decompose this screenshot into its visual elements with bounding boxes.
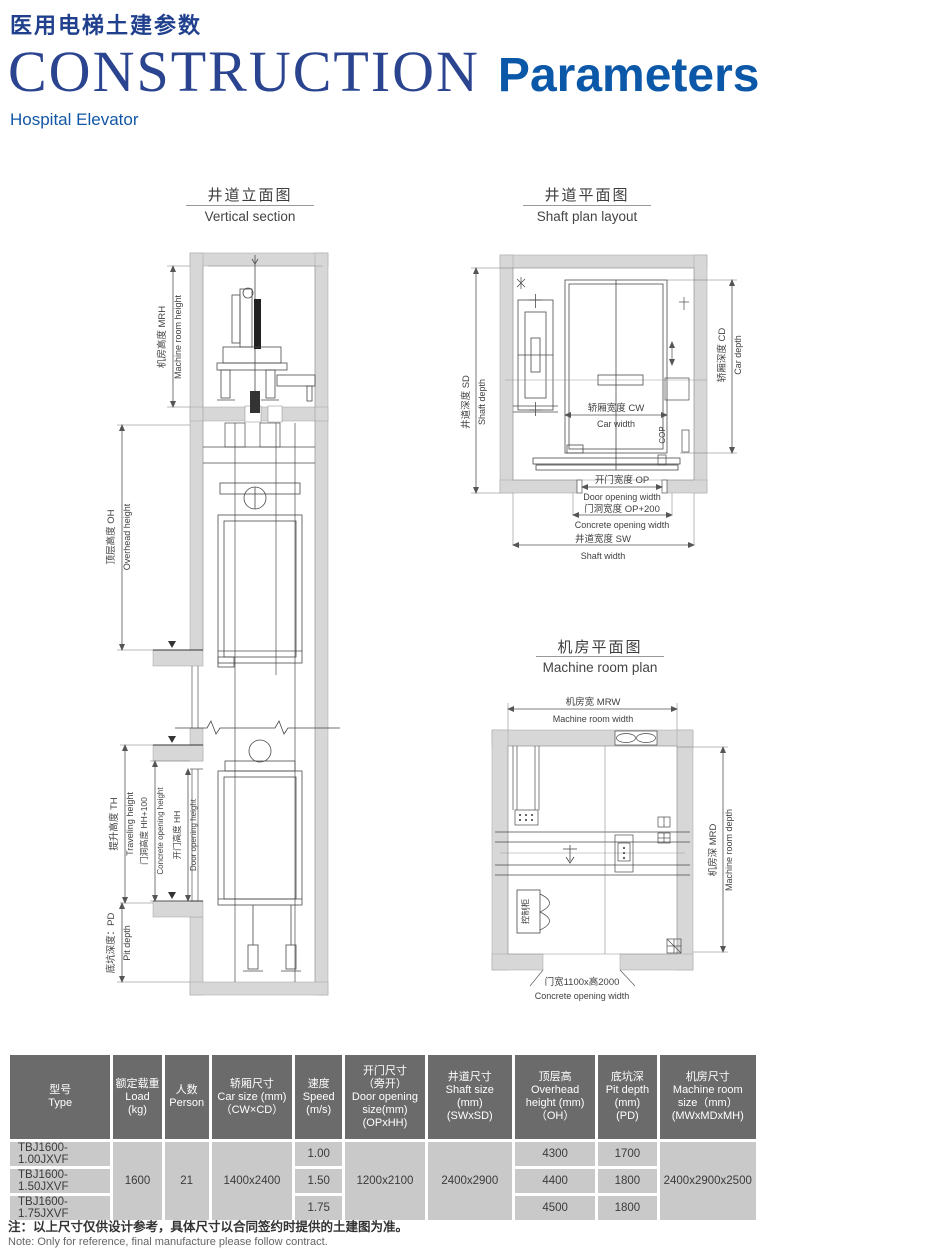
header-type: 型号 Type [10, 1055, 110, 1139]
cell-shaft-size: 2400x2900 [428, 1142, 512, 1220]
th-label-zh: 提升高度 TH [108, 797, 120, 850]
cell-pit-1: 1700 [598, 1142, 656, 1166]
cell-pit-2: 1800 [598, 1169, 656, 1193]
shaft-plan-walls [500, 255, 707, 493]
cd-label-en: Car depth [733, 335, 743, 375]
control-cabinet-label: 控制柜 [521, 898, 531, 924]
header-shaft-size: 井道尺寸 Shaft size (mm) (SWxSD) [428, 1055, 512, 1139]
header-car-size: 轿厢尺寸 Car size (mm) （CW×CD） [212, 1055, 292, 1139]
cell-car-size: 1400x2400 [212, 1142, 292, 1220]
shaft-walls [190, 253, 328, 995]
cell-type-2: TBJ1600-1.50JXVF [10, 1169, 110, 1193]
cw-label-en: Car width [597, 419, 635, 429]
op200-label-zh: 门洞宽度 OP+200 [584, 503, 660, 515]
note-chinese: 注：以上尺寸仅供设计参考，具体尺寸以合同签约时提供的土建图为准。 [8, 1216, 408, 1235]
shaft-plan-title-en: Shaft plan layout [497, 209, 677, 224]
mr-door-label-en: Concrete opening width [535, 991, 630, 1001]
cd-label-zh: 轿厢深度 CD [716, 328, 728, 383]
machine-room-plan-title-zh: 机房平面图 [510, 636, 690, 657]
spec-table: 型号 Type 额定载重 Load (kg) 人数 Person 轿厢尺寸 Ca… [7, 1052, 759, 1223]
vent-fan [615, 731, 657, 745]
header-machine-room: 机房尺寸 Machine room size（mm） (MWxMDxMH) [660, 1055, 756, 1139]
cell-machine-room: 2400x2900x2500 [660, 1142, 756, 1220]
cell-load: 1600 [113, 1142, 161, 1220]
pd-label-zh: 底坑深度：PD [105, 913, 117, 974]
vertical-section-title-en: Vertical section [160, 209, 340, 224]
shaft-internals [203, 423, 315, 982]
page-title-chinese: 医用电梯土建参数 [10, 8, 202, 40]
header-pit-depth: 底坑深 Pit depth (mm) (PD) [598, 1055, 656, 1139]
hh-label-zh: 开门高度 HH [172, 811, 182, 860]
shaft-plan-title-rule [523, 205, 651, 206]
machine-room-plan-title-rule [536, 656, 664, 657]
cell-speed-2: 1.50 [295, 1169, 342, 1193]
traction-machine [217, 255, 315, 413]
op-label-en: Door opening width [583, 492, 661, 502]
title-construction: CONSTRUCTION [8, 38, 480, 105]
cell-overhead-3: 4500 [515, 1196, 595, 1220]
header-load: 额定载重 Load (kg) [113, 1055, 161, 1139]
th-label-en: Traveling height [125, 792, 135, 856]
page: { "header": { "title_zh": "医用电梯土建参数", "t… [0, 0, 930, 1258]
page-subtitle: Hospital Elevator [10, 110, 139, 130]
cabinet-door-swing [540, 894, 550, 930]
op-label-zh: 开门宽度 OP [595, 474, 649, 486]
terminal-dots [519, 814, 625, 859]
hh-label-en: Door opening height [189, 798, 198, 871]
car-top-floor [218, 483, 302, 667]
cw-label-zh: 轿厢宽度 CW [588, 402, 645, 414]
shaft-plan-title-zh: 井道平面图 [497, 184, 677, 205]
light-icon [517, 277, 525, 289]
sd-label-zh: 井道深度 SD [460, 375, 472, 429]
mrh-label-zh: 机房高度 MRH [156, 306, 168, 368]
cell-door-opening: 1200x2100 [345, 1142, 424, 1220]
cop-label: COP [658, 426, 667, 443]
mrh-label-en: Machine room height [173, 294, 183, 379]
oh-label-zh: 顶层高度 OH [105, 509, 117, 564]
sw-label-zh: 井道宽度 SW [575, 533, 631, 545]
machine-room-plan-title-en: Machine room plan [510, 660, 690, 675]
machine-room-plan-drawing: 机房宽 MRW Machine room width [455, 675, 765, 1005]
page-title-row: CONSTRUCTION Parameters [8, 38, 759, 105]
note-english: Note: Only for reference, final manufact… [8, 1236, 328, 1248]
mrw-label-en: Machine room width [553, 714, 634, 724]
vertical-section-title-zh: 井道立面图 [160, 184, 340, 205]
mrd-label-en: Machine room depth [724, 809, 734, 891]
header-person: 人数 Person [165, 1055, 209, 1139]
vertical-section-drawing: 机房高度 MRH Machine room height 顶层高度 OH Ove… [95, 245, 345, 1005]
vertical-section-title-rule [186, 205, 314, 206]
hoist-hook-icon [563, 845, 577, 863]
cell-pit-3: 1800 [598, 1196, 656, 1220]
cell-person: 21 [165, 1142, 209, 1220]
pd-label-en: Pit depth [122, 925, 132, 961]
cell-overhead-1: 4300 [515, 1142, 595, 1166]
car-plan [565, 280, 667, 470]
mr-door-label-zh: 门宽1100x高2000 [545, 976, 620, 988]
counterweight [513, 294, 558, 416]
machine-room-inner-face [508, 746, 677, 954]
header-door-opening: 开门尺寸 （旁开） Door opening size(mm) (OPxHH) [345, 1055, 424, 1139]
op200-label-en: Concrete opening width [575, 520, 670, 530]
title-parameters: Parameters [498, 48, 760, 103]
sw-label-en: Shaft width [581, 551, 626, 561]
car-bottom-floor [218, 740, 302, 971]
hh100-label-zh: 门洞高度 HH+100 [139, 797, 149, 865]
header-overhead: 顶层高 Overhead height (mm) （OH） [515, 1055, 595, 1139]
oh-label-en: Overhead height [122, 503, 132, 570]
landing-slabs [153, 641, 203, 917]
machine-room-walls [492, 730, 693, 970]
cell-speed-1: 1.00 [295, 1142, 342, 1166]
mrw-label-zh: 机房宽 MRW [566, 696, 621, 708]
cell-overhead-2: 4400 [515, 1169, 595, 1193]
sd-label-en: Shaft depth [477, 379, 487, 425]
shaft-plan-drawing: COP 井道深度 SD Shaft depth 轿厢深度 CD Car dept… [455, 250, 765, 580]
header-speed: 速度 Speed (m/s) [295, 1055, 342, 1139]
hh100-label-en: Concrete opening height [156, 787, 165, 875]
dimension-labels: 机房高度 MRH Machine room height 顶层高度 OH Ove… [105, 294, 198, 973]
control-cabinet: 控制柜 [517, 890, 550, 933]
spec-table-header-row: 型号 Type 额定载重 Load (kg) 人数 Person 轿厢尺寸 Ca… [10, 1055, 756, 1139]
mrd-label-zh: 机房深 MRD [707, 823, 719, 876]
table-row: TBJ1600-1.00JXVF 1600 21 1400x2400 1.00 … [10, 1142, 756, 1166]
cell-type-1: TBJ1600-1.00JXVF [10, 1142, 110, 1166]
